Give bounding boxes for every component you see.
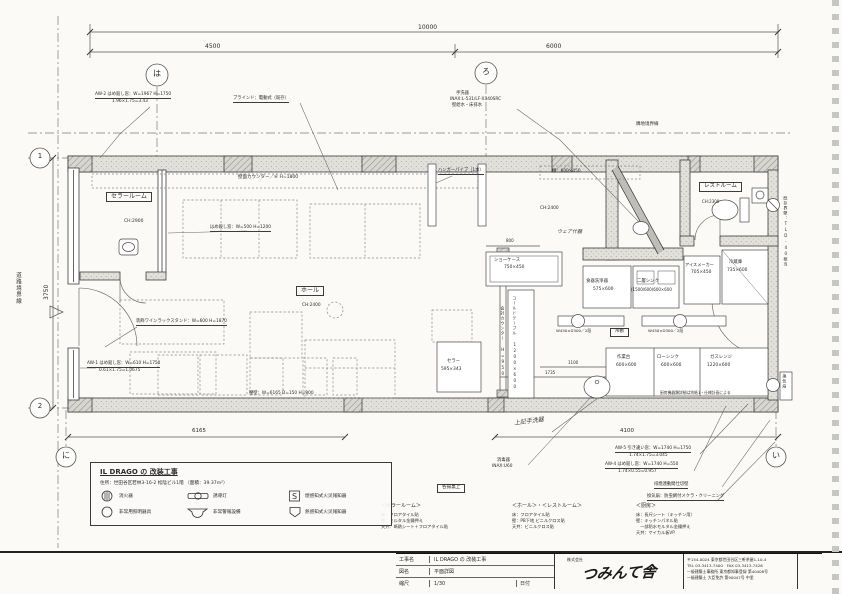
equip-fridge-name: 冷蔵庫 — [729, 261, 742, 266]
approval-stamp-cell — [797, 554, 822, 589]
equip-ice-maker-name: アイスメーカー — [685, 263, 714, 268]
legend-label-exit-light: 誘導灯 — [213, 493, 227, 499]
dim-inner-1100: 1100 — [568, 361, 578, 365]
company-prefix: 株式会社 — [567, 557, 583, 563]
annotation-sanitizer-line2: INAX:U60 — [492, 465, 512, 470]
annotation-blind: ブラインド：電動式（既存） — [233, 97, 289, 103]
scan-artifact-line — [0, 551, 842, 553]
annotation-aw5-line2: 1.74×1.75=3.045 — [629, 454, 668, 459]
company-logo-area: 株式会社 つみんて舎 — [555, 554, 683, 589]
grid-bubble-ro: ろ — [475, 68, 497, 77]
party-wall-note: 既存界壁：TLD-40相当 — [783, 196, 787, 267]
scan-artifact-filmstrip — [832, 0, 839, 594]
annotation-shelf: 棚：600×450 — [552, 170, 581, 175]
company-logo: つみんて舎 — [554, 560, 684, 586]
annotation-smoke-wall: 排煙連動間仕切壁 — [654, 483, 688, 489]
legend-label-heat-detector: 熱感知式火災報知器 — [305, 509, 346, 515]
dim-bottom-right: 4100 — [620, 429, 634, 435]
legend-box: IL DRAGO の 改装工事 住所：世田谷区若林3-16-2 松陰ビル1階 （… — [90, 462, 392, 526]
equip-dishwasher-name: 食器洗浄器 — [586, 280, 608, 285]
legend-item-exit-light: 誘導灯 — [186, 490, 288, 502]
dim-bottom-left: 6165 — [192, 429, 206, 435]
annotation-fixed-window: はめ殺し窓：W=500 H=1200 — [210, 226, 271, 232]
grid-bubble-2: 2 — [29, 403, 51, 411]
annotation-aw2-line2: 1.96×1.75=3.43 — [112, 100, 148, 105]
dim-inner-800: 800 — [506, 239, 514, 243]
annotation-sanitizer-line1: 消毒器 — [497, 459, 510, 464]
finish-kitchen-title: ＜厨房＞ — [636, 503, 695, 511]
dim-inner-1735: 1735 — [545, 371, 555, 375]
heat-detector-icon — [288, 506, 302, 518]
floor-plan-sheet: 10000 4500 6000 3750 6165 4100 800 1100 … — [0, 0, 842, 594]
legend-item-emergency-light: 非常用照明器具 — [100, 506, 186, 518]
title-row-drawing-label: 図名 — [396, 568, 430, 575]
title-row-date-cell: 日付 — [516, 580, 554, 587]
hanger-area-ceiling-height: CH:2400 — [540, 207, 559, 212]
finish-hall-ceiling: 天井：ビニルクロス貼 — [512, 524, 582, 530]
room-label-hall: ホール — [296, 286, 324, 296]
emergency-light-icon — [100, 506, 116, 518]
legend-label-fire-extinguisher: 消火器 — [119, 493, 133, 499]
emergency-alarm-icon — [186, 506, 210, 518]
annotation-wine-rack: 装飾ワインラックスタンド：W=600 H=1870 — [136, 320, 227, 326]
exit-light-icon — [186, 490, 210, 502]
annotation-vent-fan: 換気扇：防虫網付メクラ・クリーニング — [647, 495, 724, 501]
equip-gas-range-size: 1220×600 — [707, 364, 730, 369]
equip-work-table-size: 600×600 — [616, 364, 636, 369]
legend-address: 住所：世田谷区若林3-16-2 松陰ビル1階 （面積：39.37m²） — [100, 480, 382, 486]
boxed-note: 各揚裏上 — [437, 484, 465, 493]
title-row-project: 工事名 IL DRAGO の 改装工事 — [396, 554, 554, 566]
smoke-detector-icon: S — [288, 490, 302, 502]
grid-bubble-1: 1 — [29, 153, 51, 161]
title-row-scale-label: 縮尺 — [396, 580, 430, 587]
restroom-ceiling-height: CH:2300 — [702, 200, 719, 204]
adjacent-boundary-label: 隣地境界線 — [636, 123, 659, 128]
equip-hanging-shelf-size-left: W450×D300／2段 — [556, 329, 591, 333]
annotation-aw4-line2: 1.74×0.55=0.957 — [618, 470, 657, 475]
smoke-detector-glyph: S — [292, 492, 297, 501]
title-row-drawing-value: 平面詳図 — [430, 568, 554, 575]
finish-kitchen-floor: 床：長尺シート（キッチン用） — [636, 512, 695, 518]
annotation-hanger-pipe: ハンガーパイプ（1本） — [438, 169, 484, 175]
legend-label-smoke-detector: 煙感知式火災報知器 — [305, 493, 346, 499]
equip-hanging-shelf-size-right: W450×D300／2段 — [648, 329, 683, 333]
room-label-cellar: セラールーム — [106, 192, 152, 202]
title-row-scale: 縮尺 1/30 日付 — [396, 578, 554, 589]
hall-ceiling-height: CH:2400 — [302, 304, 321, 309]
title-row-project-label: 工事名 — [396, 556, 430, 563]
legend-item-heat-detector: 熱感知式火災報知器 — [288, 506, 382, 518]
title-row-scale-value: 1/30 — [430, 581, 516, 587]
equip-cellar-unit-name: セラー — [447, 360, 460, 365]
annotation-cash-counter: 会計カウンター H=950 — [500, 306, 504, 377]
legend-item-fire-extinguisher: 消火器 — [100, 490, 186, 502]
equip-dishwasher-size: 575×600 — [593, 288, 613, 293]
equip-hanging-shelf-name: 吊棚 — [610, 328, 629, 337]
title-row-drawing: 図名 平面詳図 — [396, 566, 554, 578]
vent-fan-label: 換気扇 — [782, 374, 786, 389]
equip-low-sink-name: ローシンク — [657, 356, 679, 361]
company-info-block: 〒154-0024 東京都世田谷区三軒茶屋1-10-4 TEL 03-3413-… — [683, 554, 797, 589]
equip-fridge-size: 735×600 — [727, 269, 747, 274]
grid-bubble-ha: は — [146, 70, 168, 79]
equip-low-sink-size: 600×600 — [661, 364, 681, 369]
equip-showcase-size: 750×450 — [504, 266, 524, 271]
finish-hall-title: ＜ホール＞・＜レストルーム＞ — [512, 503, 582, 511]
equip-gas-range-name: ガスレンジ — [710, 356, 732, 361]
title-block-table: 工事名 IL DRAGO の 改装工事 図名 平面詳図 縮尺 1/30 日付 — [396, 554, 555, 589]
annotation-basin-line2: INAX:L-531/LF-X340SRC — [450, 98, 501, 103]
legend-item-alarm: 非常警報設備 — [186, 506, 288, 518]
finish-schedule-kitchen: ＜厨房＞ 床：長尺シート（キッチン用） 壁：キッチンパネル貼 一部防水モルタル金… — [636, 503, 695, 537]
dim-overall: 10000 — [418, 25, 437, 31]
equip-sink2-name: 二層シンク — [637, 280, 659, 285]
legend-label-emergency-light: 非常用照明器具 — [119, 509, 151, 515]
room-label-restroom: レストルーム — [699, 182, 742, 192]
annotation-wall-counter: 壁面カウンター／⑥ H=1800 — [238, 176, 298, 181]
equip-cold-table: コールドテーブル 1200×600 — [512, 296, 516, 390]
dim-span-right: 6000 — [546, 44, 561, 50]
grid-bubble-ni: に — [55, 452, 77, 461]
legend-item-smoke-detector: S 煙感知式火災報知器 — [288, 490, 382, 502]
equip-sink2-size: (1500/600)600×600 — [631, 288, 672, 292]
dim-span-left: 4500 — [205, 44, 220, 50]
kitchen-detail-note: 厨房機器類詳細は別紙1・仕様計画による — [660, 391, 731, 395]
finish-kitchen-ceiling: 天井：ケイカル板VP — [636, 530, 695, 536]
equip-work-table-name: 作業台 — [617, 356, 630, 361]
road-boundary-label: 道路境界線 — [14, 272, 20, 305]
title-row-project-value: IL DRAGO の 改装工事 — [430, 556, 554, 563]
annotation-aw1-line2: 0.61×1.75=1.0675 — [99, 369, 140, 374]
equip-showcase-name: ショーケース — [494, 259, 520, 264]
dim-depth: 3750 — [44, 285, 50, 300]
company-info-license2: 一級建築士 大臣免許 第90047号 中里 — [687, 575, 794, 581]
equip-ice-maker-size: 705×450 — [691, 271, 711, 276]
title-block: 工事名 IL DRAGO の 改装工事 図名 平面詳図 縮尺 1/30 日付 株… — [396, 552, 822, 589]
annotation-basin-line1: 手洗器 — [456, 92, 469, 97]
legend-title: IL DRAGO の 改装工事 — [100, 467, 382, 477]
legend-label-alarm: 非常警報設備 — [213, 509, 241, 515]
grid-bubble-i: い — [765, 452, 787, 461]
handwritten-wear-note: ウェア什器 — [557, 230, 582, 235]
annotation-low-wall: 腰壁：W=6165 D=150 H=800 — [249, 392, 314, 397]
cellar-ceiling-height: CH:2900 — [124, 220, 144, 225]
annotation-basin-line3: 壁給水・床排水 — [452, 104, 482, 109]
finish-schedule-hall: ＜ホール＞・＜レストルーム＞ 床：フロアタイル貼 壁：PB下地 ビニルクロス貼 … — [512, 503, 582, 530]
fire-extinguisher-icon — [100, 490, 116, 502]
equip-cellar-unit-size: 595×343 — [441, 368, 461, 373]
